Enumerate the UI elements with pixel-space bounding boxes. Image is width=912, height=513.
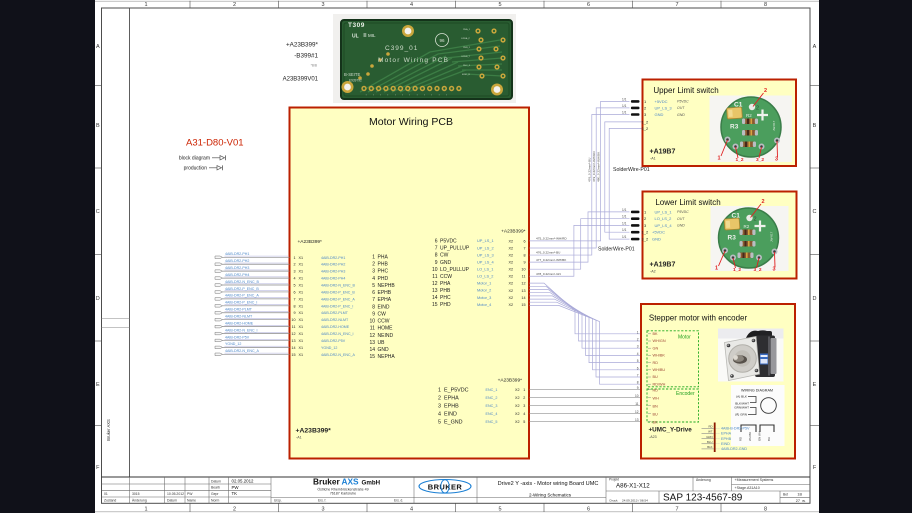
svg-text:EPHA: EPHA [721,432,732,436]
svg-text:CW: CW [440,253,449,259]
svg-text:4AIB-DR2-NLMT: 4AIB-DR2-NLMT [225,314,253,318]
svg-text:X2: X2 [509,246,514,250]
svg-text:X2: X2 [509,253,514,257]
svg-text:3: 3 [372,269,375,275]
svg-text:+A23B399*: +A23B399* [501,229,526,235]
svg-text:7: 7 [523,246,525,250]
svg-text:478_0.22mm²-GN: 478_0.22mm²-GN [536,272,561,276]
svg-text:(A) BLK: (A) BLK [736,395,748,399]
svg-text:14: 14 [432,295,438,301]
svg-text:477_0.22mm²-WH/BK: 477_0.22mm²-WH/BK [536,258,567,262]
svg-text:12: 12 [369,333,375,339]
svg-text:4: 4 [438,411,441,417]
svg-text:X1: X1 [299,304,304,308]
svg-text:1/1: 1/1 [622,104,627,108]
svg-text:1/1: 1/1 [622,215,627,219]
svg-text:+A19B7: +A19B7 [650,262,676,269]
svg-text:X1: X1 [299,284,304,288]
svg-text:UP_LS_1: UP_LS_1 [655,209,673,214]
svg-text:SolderWire-P01: SolderWire-P01 [613,167,650,173]
svg-text:2: 2 [233,507,236,513]
svg-text:3_2: 3_2 [754,267,762,273]
svg-text:2: 2 [762,199,765,205]
svg-text:4AIB-DR2-N_ENC_A: 4AIB-DR2-N_ENC_A [225,349,260,353]
svg-text:Änderung: Änderung [132,499,147,503]
svg-text:-A1: -A1 [650,157,656,161]
svg-text:8: 8 [372,304,375,310]
svg-text:RD: RD [739,437,743,441]
svg-text:7: 7 [675,507,678,513]
svg-text:EPHB: EPHB [721,437,732,441]
svg-text:4AIB-DR2-N_ENC_I: 4AIB-DR2-N_ENC_I [321,332,354,336]
svg-text:11: 11 [635,402,639,406]
svg-text:EPHA: EPHA [444,395,459,401]
svg-text:96: 96 [439,38,445,43]
svg-text:C1: C1 [734,102,743,109]
svg-text:5: 5 [637,359,639,363]
svg-text:4AIB-DR2-PLMT: 4AIB-DR2-PLMT [225,308,253,312]
svg-text:GND: GND [677,113,685,117]
svg-text:15: 15 [369,354,375,360]
svg-text:BRUKER: BRUKER [428,483,463,492]
svg-text:X1: X1 [299,318,304,322]
svg-text:6: 6 [587,2,590,8]
svg-text:TK: TK [232,491,238,496]
svg-text:GND: GND [378,347,390,353]
svg-text:NEPHB: NEPHB [378,283,396,289]
svg-text:3: 3 [523,404,525,408]
svg-text:2: 2 [637,338,639,342]
svg-text:UB: UB [378,340,386,346]
svg-text:4AIB-DR2-P_ENC_I: 4AIB-DR2-P_ENC_I [225,301,257,305]
svg-text:Bruker: Bruker [313,477,341,487]
svg-text:Bearb: Bearb [211,486,220,490]
svg-text:UP_LS_1: UP_LS_1 [477,238,494,243]
svg-text:CCW: CCW [378,319,390,325]
svg-text:475_0.22mm²-WH/RD: 475_0.22mm²-WH/RD [536,237,567,241]
svg-text:9: 9 [637,386,639,390]
svg-text:B-SEITE: B-SEITE [344,72,360,77]
svg-text:15: 15 [521,303,525,307]
svg-text:X1: X1 [299,325,304,329]
svg-text:9: 9 [435,260,438,266]
svg-text:EIND: EIND [721,442,730,446]
svg-text:4AIB-DR2-P5V: 4AIB-DR2-P5V [225,335,250,339]
svg-text:HOME: HOME [378,326,394,332]
svg-text:Motor_1: Motor_1 [477,281,491,286]
svg-text:X2: X2 [515,396,520,400]
svg-text:479_0.22mm²-WH/RD: 479_0.22mm²-WH/RD [592,151,596,182]
svg-text:8: 8 [764,507,767,513]
svg-text:4AIB-DR2-P5V: 4AIB-DR2-P5V [321,339,346,343]
svg-text:PHA_1: PHA_1 [463,28,471,31]
svg-text:3: 3 [321,2,324,8]
svg-text:B: B [813,123,817,129]
svg-text:3_2: 3_2 [756,157,764,163]
svg-text:9: 9 [372,311,375,317]
svg-text:SAP 123-4567-89: SAP 123-4567-89 [663,493,743,504]
svg-text:5: 5 [372,283,375,289]
svg-text:6: 6 [587,507,590,513]
svg-text:4AIB-DR2-PH2: 4AIB-DR2-PH2 [225,259,249,263]
svg-text:7: 7 [637,374,639,378]
svg-text:LO_LS_1: LO_LS_1 [477,266,493,271]
svg-text:EPHB: EPHB [378,290,392,296]
svg-text:2: 2 [523,396,525,400]
svg-text:LO_PULLUP: LO_PULLUP [440,267,470,273]
svg-text:YGND_12: YGND_12 [225,342,241,346]
svg-text:1_2: 1_2 [642,230,649,235]
svg-text:6: 6 [372,290,375,296]
svg-text:X1: X1 [299,353,304,357]
svg-text:Motor: Motor [678,335,691,341]
svg-text:NEPHA: NEPHA [378,354,396,360]
svg-text:Bruker AXS: Bruker AXS [106,419,111,441]
svg-text:PHB_2: PHB_2 [463,47,471,49]
svg-text:X1: X1 [299,332,304,336]
svg-text:+A23B399*: +A23B399* [298,239,323,245]
svg-text:01: 01 [104,492,108,496]
svg-text:13: 13 [635,418,639,422]
svg-text:UP_LS_4: UP_LS_4 [655,223,673,228]
svg-text:+5VDC: +5VDC [655,99,668,104]
svg-text:2: 2 [372,262,375,268]
svg-text:PHC: PHC [378,269,389,275]
svg-text:4AIB-DR2-HOME: 4AIB-DR2-HOME [321,325,350,329]
svg-text:BU: BU [653,375,659,379]
svg-text:X2: X2 [515,420,520,424]
svg-text:X2: X2 [509,268,514,272]
svg-text:E939792: E939792 [349,79,362,83]
svg-text:BK: BK [653,421,659,425]
svg-text:CW: CW [378,311,387,317]
svg-text:EPHB_T: EPHB_T [461,56,470,58]
svg-text:8: 8 [523,253,525,257]
svg-text:X2: X2 [509,261,514,265]
svg-text:GND: GND [677,224,685,228]
svg-text:X1: X1 [299,297,304,301]
svg-text:1: 1 [523,388,525,392]
svg-text:4AIB-DR2-P_ENC_I: 4AIB-DR2-P_ENC_I [321,304,353,308]
svg-text:A: A [813,44,817,50]
svg-text:GRN: GRN [706,435,712,439]
svg-text:3: 3 [438,403,441,409]
svg-text:7: 7 [372,297,375,303]
svg-text:Stepper motor with encoder: Stepper motor with encoder [649,314,748,323]
svg-text:ENC_2: ENC_2 [486,396,498,400]
svg-text:RD: RD [708,425,712,429]
svg-text:RD/WH: RD/WH [653,382,666,386]
svg-text:X1: X1 [299,263,304,267]
svg-text:6: 6 [637,366,639,370]
svg-text:PHA: PHA [440,281,451,287]
svg-text:4AIB-DR2-NLMT: 4AIB-DR2-NLMT [321,318,349,322]
svg-text:SolderWire-P01: SolderWire-P01 [598,247,635,253]
svg-text:(A̅) GRN: (A̅) GRN [735,413,747,417]
svg-text:AXS: AXS [342,477,360,487]
svg-text:4AIB-DR2-PH4: 4AIB-DR2-PH4 [225,273,249,277]
svg-text:1: 1 [144,507,147,513]
svg-text:Datum: Datum [167,499,177,503]
svg-text:GND: GND [652,237,661,242]
svg-text:PHB: PHB [378,262,389,268]
svg-text:10: 10 [432,267,438,273]
svg-text:EIND_R: EIND_R [462,74,470,76]
svg-text:B: B [96,123,100,129]
svg-text:10.05.2012: 10.05.2012 [167,492,184,496]
svg-text:R3: R3 [728,235,737,242]
svg-text:1/1: 1/1 [622,228,627,232]
svg-text:1: 1 [715,266,718,272]
svg-text:block diagram: block diagram [179,156,210,162]
svg-text:14: 14 [521,296,525,300]
svg-text:JW-817: JW-817 [770,231,774,242]
svg-text:C: C [96,209,100,215]
svg-text:YGND_12: YGND_12 [321,346,337,350]
svg-text:X2: X2 [515,412,520,416]
svg-text:3: 3 [775,157,778,163]
svg-text:4AIB-DR2-PLMT: 4AIB-DR2-PLMT [321,311,349,315]
svg-text:R3: R3 [730,124,739,131]
svg-text:PHC: PHC [440,295,451,301]
svg-text:14: 14 [291,346,295,350]
svg-text:4: 4 [410,507,413,513]
svg-text:X2: X2 [515,388,520,392]
svg-text:7: 7 [675,2,678,8]
svg-text:Motor_4: Motor_4 [477,302,492,307]
svg-text:4AIB-DR2-P_ENC_A: 4AIB-DR2-P_ENC_A [225,294,259,298]
svg-text:Ers. d.: Ers. d. [394,498,403,502]
svg-text:1_2: 1_2 [642,119,649,124]
svg-text:LO_LS_2: LO_LS_2 [477,274,493,279]
svg-text:5: 5 [293,284,295,288]
svg-text:X2: X2 [509,282,514,286]
svg-text:9: 9 [293,311,295,315]
svg-text:1_2: 1_2 [733,267,741,273]
svg-text:Bet: Bet [783,492,788,496]
svg-text:RD: RD [653,361,659,365]
svg-text:4: 4 [410,2,413,8]
svg-text:PHA: PHA [378,255,389,261]
svg-text:12: 12 [635,410,639,414]
svg-text:WH: WH [653,397,660,401]
svg-text:2: 2 [293,263,295,267]
svg-text:PHD: PHD [440,302,451,308]
svg-text:+A23B399*: +A23B399* [286,42,319,49]
svg-text:BN: BN [653,405,659,409]
svg-text:-B399#1: -B399#1 [294,53,318,60]
svg-text:3: 3 [773,267,776,273]
svg-text:6: 6 [435,239,438,245]
svg-text:X2: X2 [509,303,514,307]
svg-text:2: 2 [754,217,757,223]
svg-text:X2: X2 [509,289,514,293]
svg-text:4: 4 [293,277,295,281]
svg-text:ENC_3: ENC_3 [486,404,498,408]
svg-text:E_GND: E_GND [444,419,463,425]
svg-text:BU: BU [767,437,771,441]
svg-text:4AIB-DR2-N_ENC_I: 4AIB-DR2-N_ENC_I [225,328,258,332]
svg-text:WH/BU: WH/BU [653,368,666,372]
svg-text:Datum: Datum [211,479,221,483]
svg-text:CCW: CCW [440,274,452,280]
svg-text:5: 5 [498,507,501,513]
svg-text:WH/BK: WH/BK [653,354,666,358]
svg-text:Ursp.: Ursp. [274,498,282,502]
svg-text:1: 1 [372,255,375,261]
svg-text:1/1: 1/1 [622,208,627,212]
svg-text:Bl.: Bl. [802,499,806,503]
svg-text:02.05.2012: 02.05.2012 [232,479,255,484]
svg-text:1/1: 1/1 [622,97,627,101]
svg-text:5: 5 [498,2,501,8]
svg-text:X2: X2 [509,296,514,300]
svg-text:4AIB-DR2-GND: 4AIB-DR2-GND [721,447,747,451]
svg-text:480_0.22mm²-WH/BK: 480_0.22mm²-WH/BK [596,151,600,182]
svg-text:Änderung: Änderung [696,478,711,482]
svg-text:10: 10 [521,268,525,272]
svg-text:13: 13 [432,288,438,294]
svg-text:R2: R2 [744,224,750,229]
svg-text:BLU: BLU [707,440,712,444]
svg-text:UP_LS_4: UP_LS_4 [477,259,494,264]
svg-text:11: 11 [522,275,526,279]
svg-text:X2: X2 [509,239,514,243]
svg-text:8: 8 [435,253,438,259]
svg-text:A: A [96,44,100,50]
svg-text:5: 5 [523,420,525,424]
svg-text:WIRING DIAGRAM: WIRING DIAGRAM [741,389,773,393]
svg-text:24.09.2013 / 08:54: 24.09.2013 / 08:54 [622,498,648,502]
svg-text:Motor_3: Motor_3 [477,295,491,300]
svg-text:X2: X2 [509,275,514,279]
svg-text:1: 1 [293,256,295,260]
svg-text:4AIB-DR2-PH2: 4AIB-DR2-PH2 [321,263,345,267]
svg-text:BK: BK [653,332,659,336]
svg-text:A86-X1-X12: A86-X1-X12 [616,483,650,490]
svg-text:UP_LS_3: UP_LS_3 [477,252,494,257]
svg-text:7: 7 [435,246,438,252]
svg-text:EIND: EIND [444,411,457,417]
svg-text:+A23B399*: +A23B399* [498,378,523,384]
svg-text:OUT: OUT [677,106,685,110]
svg-text:10: 10 [291,318,295,322]
svg-text:4AIB-DR2-N_ENC_B: 4AIB-DR2-N_ENC_B [225,280,260,284]
svg-text:RD: RD [653,389,659,393]
svg-text:4AIB-DR2-N_ENC_B: 4AIB-DR2-N_ENC_B [321,284,356,288]
svg-text:EPHB: EPHB [444,403,459,409]
svg-text:3_2: 3_2 [642,237,649,242]
svg-text:1: 1 [438,387,441,393]
svg-text:4AIB-DR2-P_ENC_B: 4AIB-DR2-P_ENC_B [321,290,355,294]
svg-text:GN: GN [653,346,659,350]
svg-text:LO_LS_2: LO_LS_2 [655,216,673,221]
svg-text:GN WH: GN WH [758,431,762,441]
svg-text:production: production [184,166,208,172]
svg-text:P5VDC: P5VDC [677,100,689,104]
svg-text:10: 10 [369,319,375,325]
svg-text:P5VDC: P5VDC [677,210,689,214]
svg-text:D: D [96,296,100,302]
svg-text:4: 4 [637,352,639,356]
svg-text:X1: X1 [299,256,304,260]
svg-text:EIND: EIND [378,304,390,310]
svg-text:4AIB-DR2-P_ENC_A: 4AIB-DR2-P_ENC_A [321,297,355,301]
svg-text:X1: X1 [299,270,304,274]
svg-text:X1: X1 [299,290,304,294]
svg-text:UP_LS_3: UP_LS_3 [655,105,673,110]
svg-text:4AIB-DR2-PH4: 4AIB-DR2-PH4 [321,277,345,281]
svg-text:2: 2 [756,106,759,112]
svg-text:+5VDC: +5VDC [652,230,665,235]
svg-text:4AIB-DR2-PH3: 4AIB-DR2-PH3 [225,266,249,270]
svg-text:X1: X1 [299,339,304,343]
svg-text:OUT: OUT [677,217,685,221]
svg-text:*B/B: *B/B [311,64,317,68]
svg-text:13: 13 [291,339,295,343]
svg-text:+Measurement Systems: +Measurement Systems [735,478,774,482]
svg-text:BLK: BLK [707,445,712,449]
svg-text:14: 14 [369,347,375,353]
svg-text:ENC_1: ENC_1 [486,388,498,392]
svg-text:6: 6 [523,239,525,243]
svg-text:Norm: Norm [211,499,219,503]
svg-text:EPHA_P: EPHA_P [461,37,470,40]
svg-text:JW-817: JW-817 [772,120,776,131]
svg-text:GND: GND [655,112,664,117]
svg-text:4: 4 [372,276,375,282]
svg-text:9: 9 [523,261,525,265]
svg-text:2-Wiring Schematics: 2-Wiring Schematics [529,493,572,498]
svg-text:8: 8 [764,2,767,8]
svg-text:8: 8 [637,381,639,385]
svg-text:Upper Limit switch: Upper Limit switch [653,86,718,95]
svg-text:15: 15 [432,302,438,308]
svg-text:15: 15 [291,353,295,357]
svg-text:6: 6 [293,290,295,294]
svg-text:2: 2 [233,2,236,8]
svg-text:+UMC_Y-Drive: +UMC_Y-Drive [649,427,693,434]
svg-text:1/1: 1/1 [622,111,627,115]
svg-text:A23B399V01: A23B399V01 [283,77,319,83]
svg-text:+A23B399*: +A23B399* [296,428,332,435]
svg-text:ENC_4: ENC_4 [486,412,498,416]
svg-text:3: 3 [293,270,295,274]
svg-text:Projekt: Projekt [609,478,619,482]
svg-text:476_0.22mm²-BU: 476_0.22mm²-BU [587,158,591,182]
svg-text:D: D [813,296,817,302]
svg-text:+Stage.A31A10: +Stage.A31A10 [735,486,760,490]
svg-text:4: 4 [523,412,525,416]
svg-text:PW: PW [232,485,240,490]
svg-text:R2: R2 [746,113,752,118]
svg-text:Zustand: Zustand [104,499,116,503]
svg-text:13: 13 [521,289,525,293]
svg-text:PHD: PHD [378,276,389,282]
svg-text:4AIB-DR2-PH1: 4AIB-DR2-PH1 [321,256,345,260]
svg-text:GmbH: GmbH [362,480,381,487]
svg-text:1: 1 [718,156,721,162]
svg-text:X1: X1 [299,277,304,281]
svg-text:NEIND: NEIND [378,333,394,339]
svg-text:BU: BU [653,413,659,417]
svg-text:C1: C1 [732,213,741,220]
svg-text:UP_PULLUP: UP_PULLUP [440,246,470,252]
svg-text:GRN/WHT: GRN/WHT [734,406,749,410]
svg-text:12: 12 [291,332,295,336]
svg-text:4AIB-DR2-PH1: 4AIB-DR2-PH1 [225,252,249,256]
svg-text:4AIB-DR2-HOME: 4AIB-DR2-HOME [225,321,254,325]
